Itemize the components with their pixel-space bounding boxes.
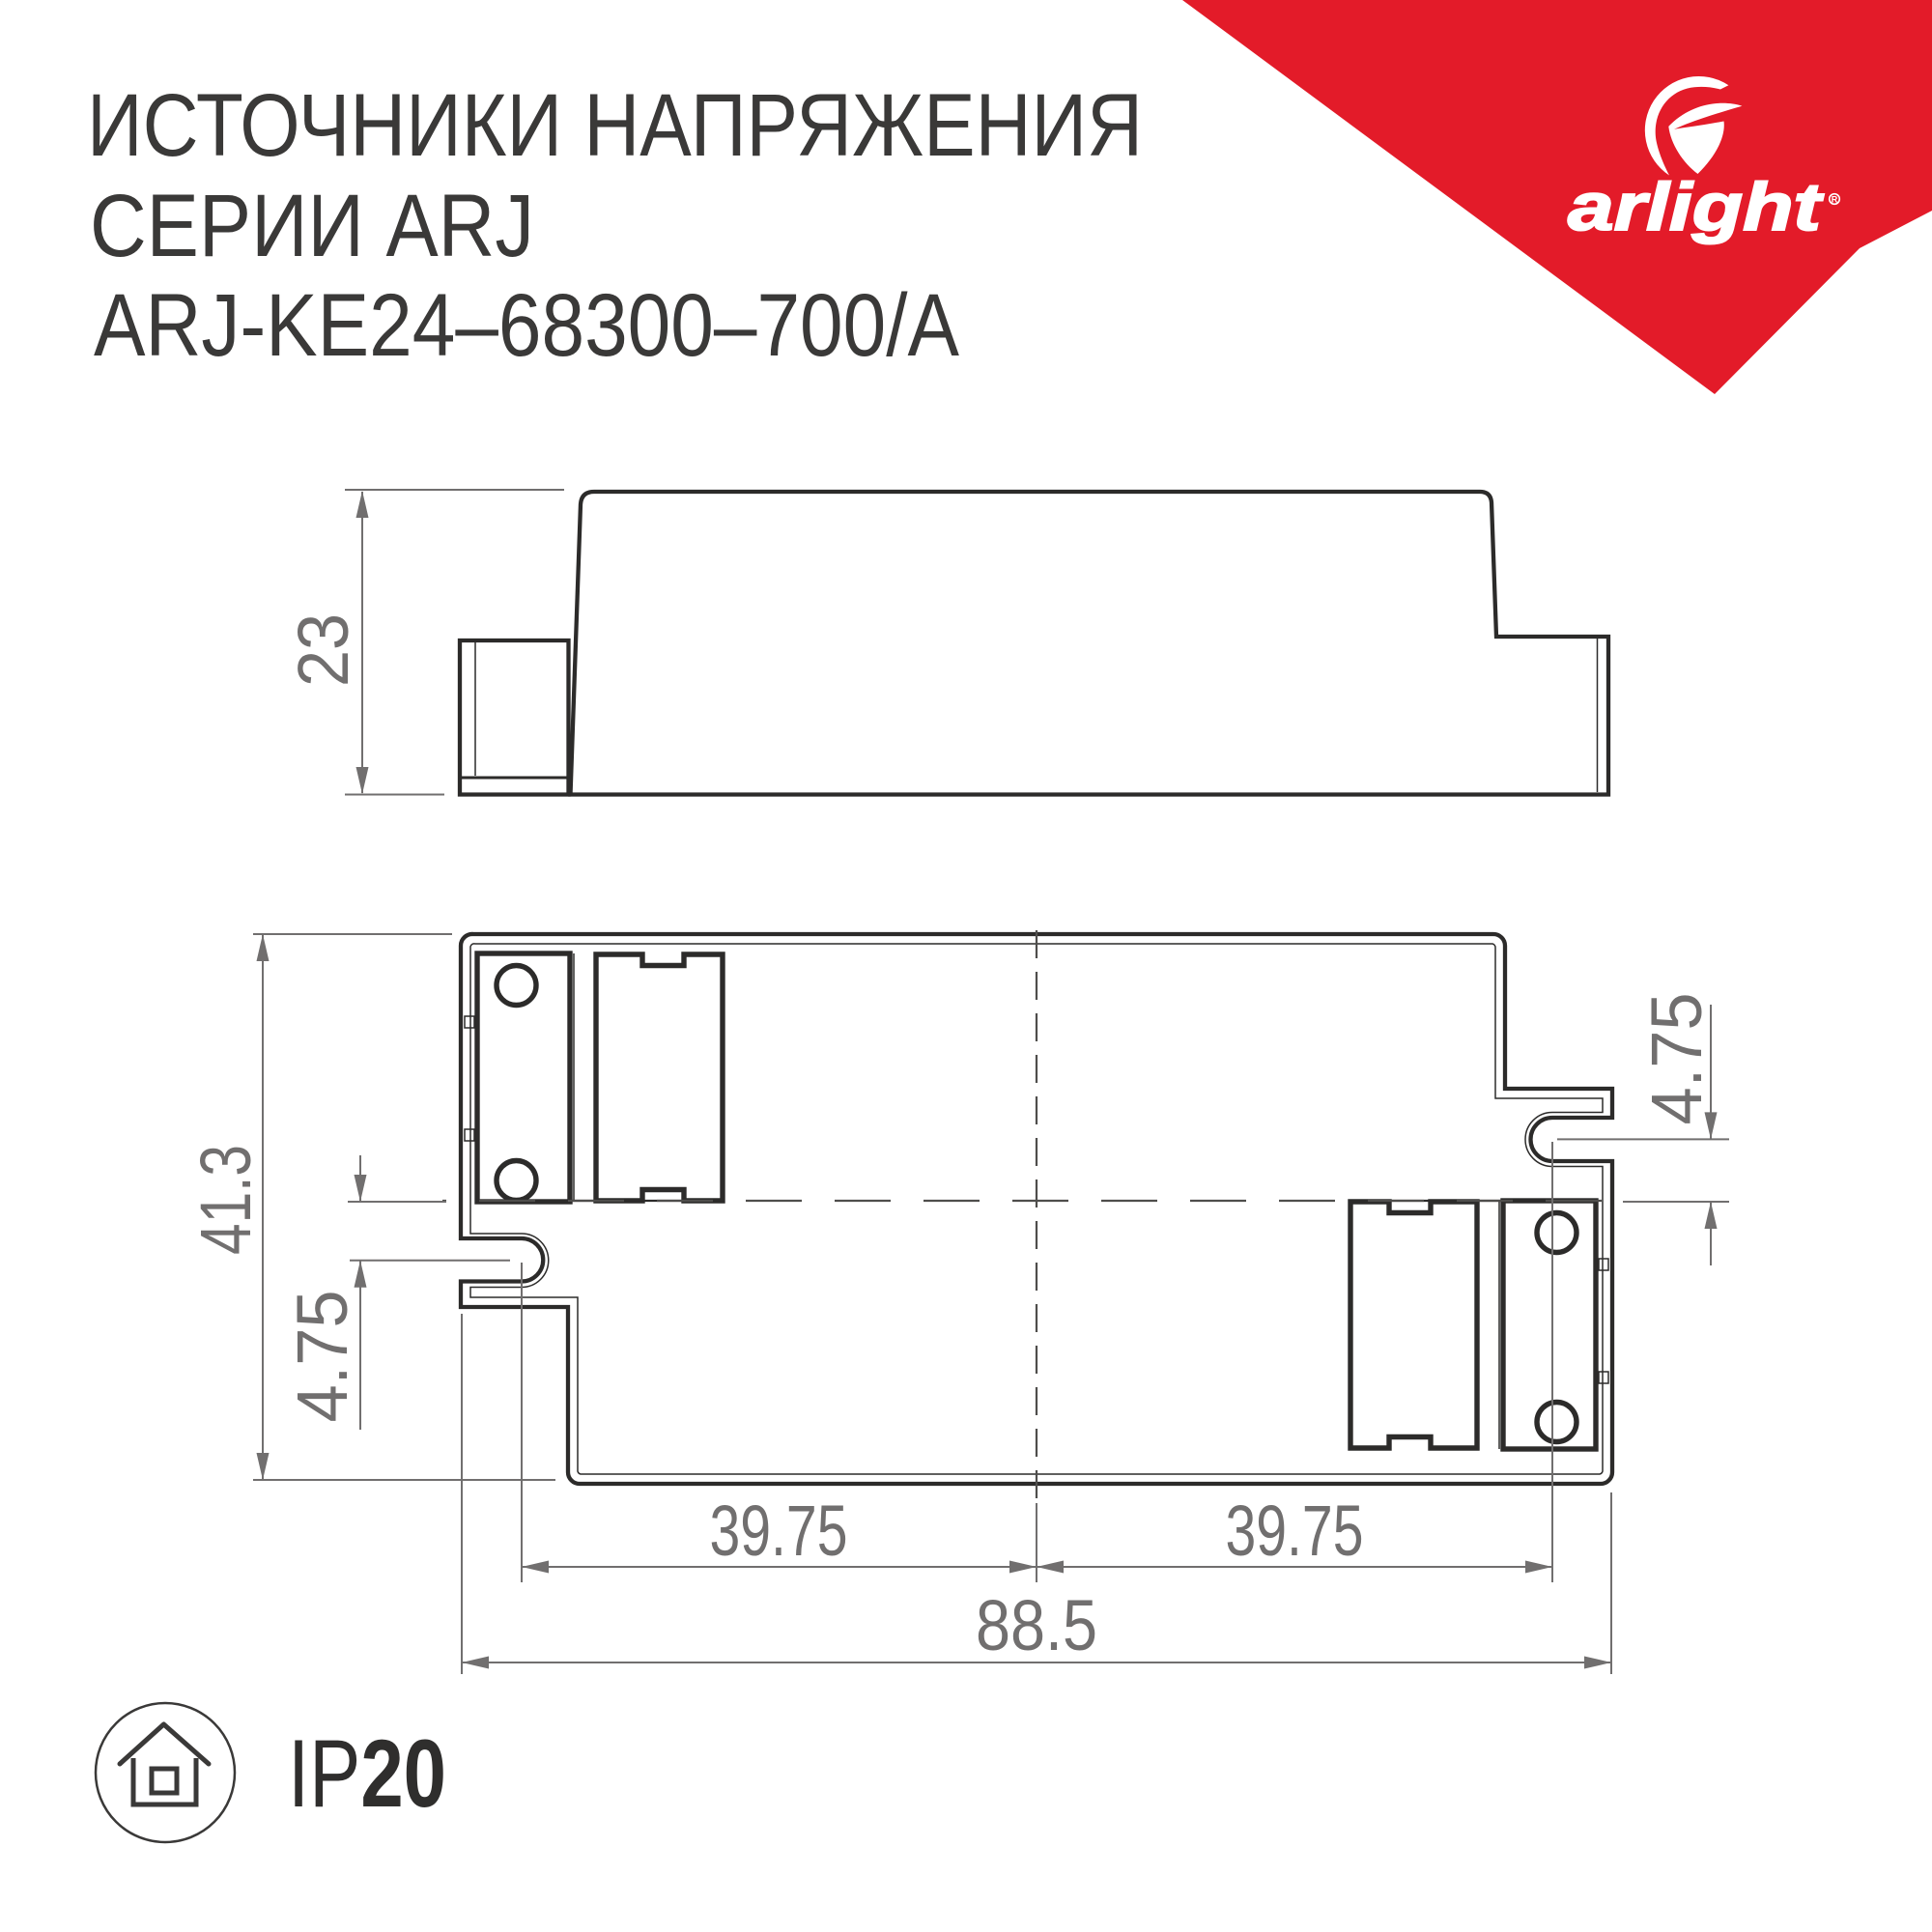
svg-text:СЕРИИ ARJ: СЕРИИ ARJ [90, 177, 534, 275]
svg-text:IP20: IP20 [288, 1719, 446, 1827]
svg-text:39.75: 39.75 [710, 1491, 848, 1571]
svg-text:88.5: 88.5 [976, 1585, 1097, 1665]
svg-text:41.3: 41.3 [185, 1145, 266, 1255]
svg-text:arlight: arlight [1568, 169, 1824, 244]
svg-text:ARJ-KE24–68300–700/А: ARJ-KE24–68300–700/А [94, 276, 960, 375]
svg-text:R: R [1832, 195, 1838, 205]
svg-text:23: 23 [283, 613, 363, 687]
svg-text:4.75: 4.75 [1636, 993, 1717, 1125]
svg-text:ИСТОЧНИКИ НАПРЯЖЕНИЯ: ИСТОЧНИКИ НАПРЯЖЕНИЯ [87, 76, 1143, 175]
svg-text:4.75: 4.75 [282, 1291, 362, 1423]
svg-text:39.75: 39.75 [1226, 1491, 1364, 1571]
